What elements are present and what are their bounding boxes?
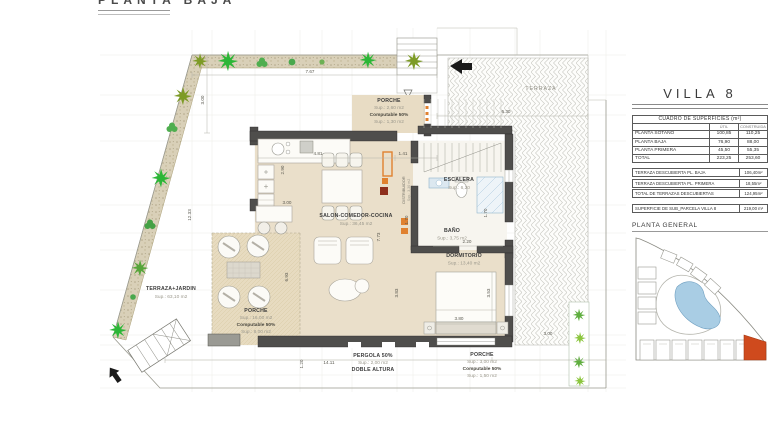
table-row: TOTAL 223,25 253,60 bbox=[633, 154, 768, 162]
bedroom-furniture bbox=[424, 272, 508, 334]
svg-text:3.83: 3.83 bbox=[394, 288, 399, 297]
hydrant-icon bbox=[380, 187, 388, 195]
svg-text:3.80: 3.80 bbox=[455, 316, 464, 321]
svg-text:3.00: 3.00 bbox=[200, 95, 205, 104]
svg-text:PERGOLA 50%: PERGOLA 50% bbox=[353, 353, 393, 359]
surfaces-table-caption: CUADRO DE SUPERFICIES (m²) bbox=[633, 116, 768, 124]
svg-text:Sup.: 36,45 m2: Sup.: 36,45 m2 bbox=[340, 221, 373, 227]
svg-text:DOBLE ALTURA: DOBLE ALTURA bbox=[352, 367, 395, 373]
nightstand-left bbox=[424, 322, 435, 334]
svg-text:Sup.: 13,40 m2: Sup.: 13,40 m2 bbox=[448, 261, 481, 267]
title-rule bbox=[632, 104, 768, 109]
stairs-entry bbox=[128, 319, 191, 372]
svg-text:Sup.: 3,00 m2: Sup.: 3,00 m2 bbox=[467, 359, 497, 365]
stool-2 bbox=[275, 222, 287, 234]
table-row: PLANTA BAJA 76,90 88,00 bbox=[633, 138, 768, 146]
svg-text:Sup.: 2,60 m2: Sup.: 2,60 m2 bbox=[374, 105, 404, 111]
terrace-row: TOTAL DE TERRAZAS DESCUBIERTAS 124,95m² bbox=[632, 189, 768, 198]
room-label-pergola: PERGOLA 50% Sup.: 2,00 m2 DOBLE ALTURA bbox=[352, 353, 395, 373]
svg-text:ESCALERA: ESCALERA bbox=[444, 177, 474, 183]
svg-text:3.00: 3.00 bbox=[283, 200, 292, 205]
svg-text:Sup.: 1,30 m2: Sup.: 1,30 m2 bbox=[374, 119, 404, 125]
pouf bbox=[355, 279, 369, 293]
svg-text:PORCHE: PORCHE bbox=[244, 308, 268, 314]
svg-text:1.20: 1.20 bbox=[299, 359, 304, 368]
svg-text:14.11: 14.11 bbox=[323, 360, 335, 365]
svg-text:Sup.: 2,00 m2: Sup.: 2,00 m2 bbox=[358, 360, 388, 366]
svg-text:6.93: 6.93 bbox=[284, 272, 289, 281]
col-construida: CONSTRUIDA bbox=[739, 124, 768, 130]
svg-text:12.33: 12.33 bbox=[187, 209, 192, 221]
villa-title: VILLA 8 bbox=[632, 86, 768, 101]
svg-text:3.53: 3.53 bbox=[486, 288, 491, 297]
svg-text:Computable 50%: Computable 50% bbox=[370, 112, 409, 118]
svg-text:1.41: 1.41 bbox=[399, 151, 408, 156]
svg-text:6.30: 6.30 bbox=[502, 109, 511, 114]
stool-1 bbox=[258, 222, 270, 234]
svg-text:1.70: 1.70 bbox=[483, 208, 488, 217]
svg-text:1.70: 1.70 bbox=[404, 215, 409, 224]
svg-text:2.90: 2.90 bbox=[280, 165, 285, 174]
svg-text:PORCHE: PORCHE bbox=[470, 352, 494, 358]
svg-text:DORMITORIO: DORMITORIO bbox=[446, 253, 482, 259]
svg-text:Sup.: 16,00 m2: Sup.: 16,00 m2 bbox=[240, 315, 273, 321]
room-label-terraza-jardin: TERRAZA+JARDIN Sup.: 63,10 m2 bbox=[146, 286, 196, 300]
dining-set bbox=[322, 153, 362, 220]
svg-text:3.00: 3.00 bbox=[544, 331, 553, 336]
svg-text:Sup.: 3,75 m2: Sup.: 3,75 m2 bbox=[437, 236, 467, 242]
kitchen-hob bbox=[300, 141, 313, 153]
svg-text:TERRAZA+JARDIN: TERRAZA+JARDIN bbox=[146, 286, 196, 292]
svg-text:PORCHE: PORCHE bbox=[377, 98, 401, 104]
svg-text:Sup.: 63,10 m2: Sup.: 63,10 m2 bbox=[155, 294, 188, 300]
info-panel: VILLA 8 CUADRO DE SUPERFICIES (m²) ÚTIL … bbox=[632, 86, 768, 369]
svg-text:7.67: 7.67 bbox=[306, 69, 315, 74]
dining-table bbox=[322, 170, 362, 203]
nightstand-right bbox=[497, 322, 508, 334]
room-label-porche-bottom: PORCHE Sup.: 3,00 m2 Computable 50% Sup.… bbox=[463, 352, 502, 379]
terrace-row: TERRAZA DESCUBIERTA PL. BAJA 106,40m² bbox=[632, 168, 768, 177]
room-label-terraza: TERRAZA bbox=[525, 86, 556, 92]
svg-text:Sup.: 6,20: Sup.: 6,20 bbox=[448, 185, 470, 191]
site-plan-villa8-lot-highlight bbox=[744, 335, 766, 360]
svg-text:DISTRIBUIDOR: DISTRIBUIDOR bbox=[402, 176, 406, 203]
svg-text:Sup.: 1,50 m2: Sup.: 1,50 m2 bbox=[467, 373, 497, 379]
shrub-icon bbox=[289, 59, 296, 66]
site-plan-title: PLANTA GENERAL bbox=[632, 222, 768, 232]
site-plan bbox=[632, 232, 768, 364]
svg-text:7.73: 7.73 bbox=[376, 232, 381, 241]
table-row: PLANTA PRIMERA 45,50 55,35 bbox=[633, 146, 768, 154]
porch-rug bbox=[227, 262, 260, 278]
svg-text:Computable 50%: Computable 50% bbox=[237, 322, 276, 328]
main-entry-arrow-icon bbox=[105, 364, 125, 385]
table-row: PLANTA SOTANO 100,85 110,25 bbox=[633, 130, 768, 138]
kitchen-island bbox=[256, 206, 292, 222]
terrace-row: TERRAZA DESCUBIERTA PL. PRIMERA 18,55m² bbox=[632, 179, 768, 188]
kitchen-sink bbox=[272, 143, 284, 155]
porch-step-mat bbox=[208, 334, 240, 346]
svg-text:BAÑO: BAÑO bbox=[444, 227, 460, 234]
svg-text:SALON-COMEDOR-COCINA: SALON-COMEDOR-COCINA bbox=[319, 213, 392, 219]
svg-text:Sup.: 8,00 m2: Sup.: 8,00 m2 bbox=[241, 329, 271, 335]
stairs-exterior-top bbox=[397, 38, 437, 98]
surfaces-table: CUADRO DE SUPERFICIES (m²) ÚTIL CONSTRUI… bbox=[632, 115, 768, 163]
svg-text:Computable 50%: Computable 50% bbox=[463, 366, 502, 372]
room-label-distribuidor: DISTRIBUIDOR Sup.: 3,30 m2 bbox=[402, 176, 411, 203]
parcel-row: SUPERFICIE DE SUB_PARCELA VILLA 8 219,00… bbox=[632, 204, 768, 213]
svg-text:Sup.: 3,30 m2: Sup.: 3,30 m2 bbox=[407, 179, 411, 201]
svg-text:4.81: 4.81 bbox=[314, 151, 323, 156]
